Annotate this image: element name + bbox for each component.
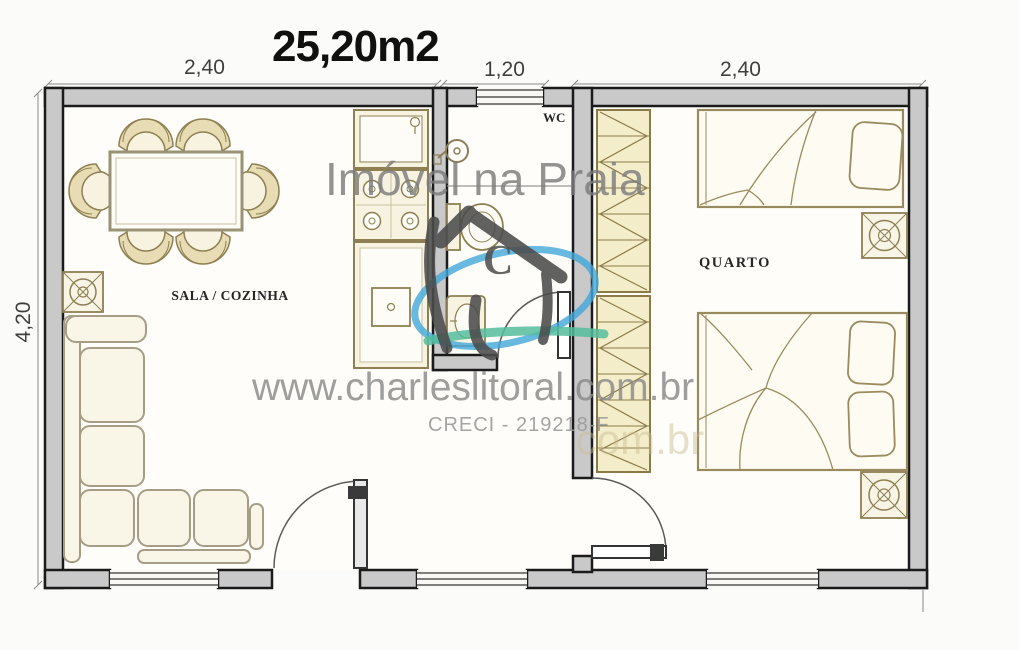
room-label-living: SALA / COZINHA: [150, 288, 310, 304]
wall-left: [45, 88, 63, 588]
bed-single: [698, 110, 903, 207]
wall-bottom-3: [360, 570, 417, 588]
pillow: [847, 321, 895, 385]
window-living-2: [417, 570, 527, 588]
ceiling-fan-living: [63, 272, 103, 312]
watermark-brand: Imóvel na Praia: [325, 152, 645, 206]
wall-bottom-2: [218, 570, 272, 588]
dimension-left: 4,20: [12, 294, 36, 350]
floorplan-drawing: [0, 0, 1019, 650]
dimension-top-left: 2,40: [184, 56, 225, 80]
room-label-bedroom: QUARTO: [699, 255, 771, 272]
pillow: [849, 121, 903, 190]
wall-right: [909, 88, 927, 588]
logo-letter: C: [483, 240, 513, 282]
wall-top-right: [543, 88, 927, 106]
door-handle: [348, 486, 368, 499]
ceiling-fan-bedroom-1: [862, 213, 907, 258]
wall-bottom-5: [818, 570, 927, 588]
dining-table: [110, 152, 242, 230]
ceiling-fan-bedroom-2: [861, 472, 907, 518]
door-handle: [650, 544, 664, 561]
page-title: 25,20m2: [272, 22, 439, 72]
window-living-1: [110, 570, 218, 588]
wall-bottom-4: [527, 570, 707, 588]
window-bedroom: [707, 570, 818, 588]
watermark-ghost: www.charleslitoral.com.br: [578, 416, 878, 468]
dimension-top-right: 2,40: [720, 58, 761, 82]
wall-bottom-1: [45, 570, 110, 588]
watermark-website: www.charleslitoral.com.br: [252, 366, 694, 410]
dimension-top-middle: 1,20: [484, 58, 525, 82]
room-label-wc: WC: [543, 110, 565, 126]
wall-top-left: [45, 88, 477, 106]
wall-bedroom-door-stub: [573, 556, 592, 572]
floorplan-image: 25,20m2 2,40 1,20 2,40 4,20 SALA / COZIN…: [0, 0, 1019, 650]
